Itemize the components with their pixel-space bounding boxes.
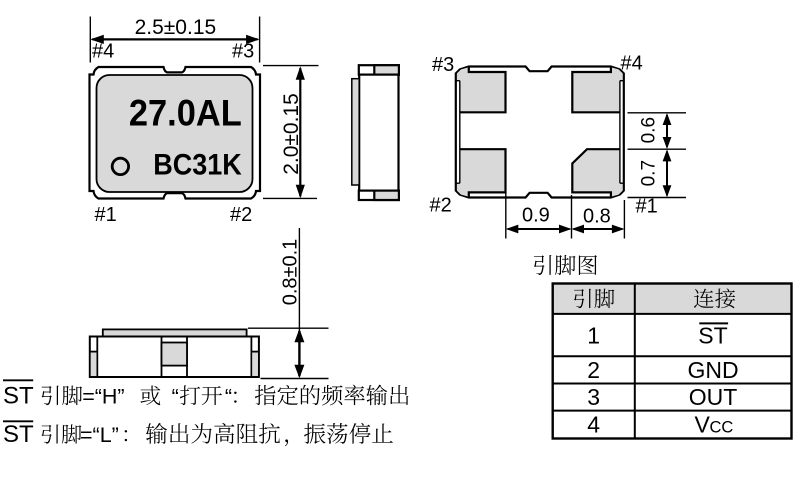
svg-text:ST: ST [3,421,34,448]
svg-text:0.9: 0.9 [522,204,550,226]
svg-text:0.8±0.1: 0.8±0.1 [279,239,301,306]
svg-text:“: “ [225,385,232,409]
svg-text:0.7: 0.7 [638,160,659,186]
svg-text:ST: ST [698,323,727,349]
svg-text:3: 3 [587,384,600,410]
svg-text:4: 4 [587,411,600,437]
svg-text:BC31K: BC31K [153,148,242,182]
svg-text:#4: #4 [621,53,643,75]
svg-text:=“L”: =“L” [80,423,119,447]
svg-text:ST: ST [3,383,34,410]
svg-text:#4: #4 [92,41,114,63]
svg-text:#3: #3 [432,54,454,76]
svg-text:2.5±0.15: 2.5±0.15 [135,16,217,39]
svg-text:V: V [695,411,711,437]
svg-text:#2: #2 [230,204,252,226]
svg-text:“: “ [172,385,179,409]
svg-text:GND: GND [687,357,738,383]
svg-text:0.8: 0.8 [583,206,611,228]
svg-text:27.0AL: 27.0AL [129,92,242,133]
svg-text:#3: #3 [232,41,254,63]
svg-text:#1: #1 [636,196,658,218]
svg-text:2.0±0.15: 2.0±0.15 [280,93,303,175]
svg-text:#2: #2 [430,195,452,217]
svg-text:CC: CC [710,418,734,436]
svg-text:1: 1 [587,323,600,349]
svg-text:OUT: OUT [689,384,738,410]
svg-text:#1: #1 [95,204,117,226]
svg-text:0.6: 0.6 [638,117,659,143]
svg-text:2: 2 [587,357,600,383]
svg-text:=“H”: =“H” [82,385,124,409]
